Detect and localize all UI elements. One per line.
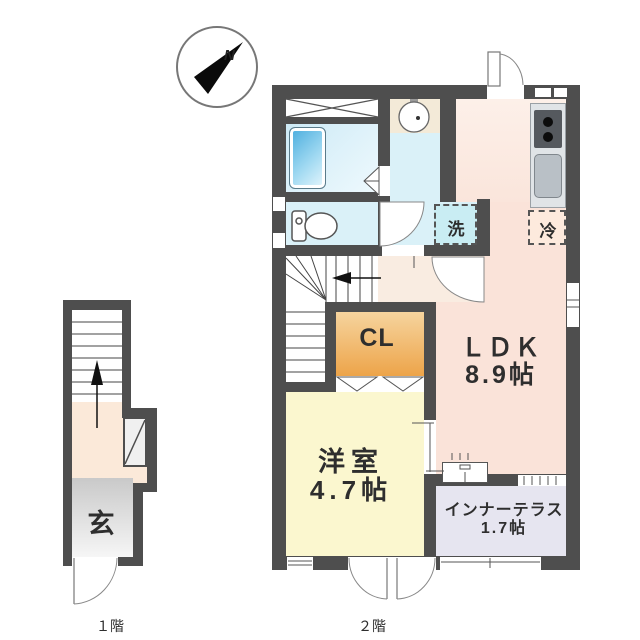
- wall-bath-toilet: [286, 192, 390, 202]
- wall-stairs-cl: [325, 302, 336, 390]
- wall1f-bump-right: [147, 408, 157, 492]
- kitchen-window-dash2: [554, 88, 567, 97]
- floor1-label: １階: [96, 616, 124, 636]
- stairs2f-upper: [286, 256, 378, 302]
- stairs1f-floor: [72, 310, 122, 402]
- toilet-window-upper: [273, 197, 285, 211]
- terrace-size-label: 1.7帖: [481, 514, 527, 538]
- wall-top: [272, 85, 580, 99]
- washroom-floor: [390, 133, 440, 245]
- fridge-label: 冷: [540, 217, 557, 242]
- terrace-bottom-window: [440, 557, 541, 570]
- shoe-cabinet: [123, 417, 147, 467]
- terrace-counter-window: [442, 462, 488, 483]
- kitchen-window-dash1: [535, 88, 551, 97]
- closet-label: CL: [359, 324, 394, 353]
- genkan-label: 玄: [88, 502, 115, 541]
- wall-hall-cl: [325, 302, 436, 312]
- wall-left: [272, 85, 286, 570]
- toilet-room-floor: [286, 202, 378, 245]
- hall1f-floor: [72, 402, 122, 478]
- bottom-door-opening: [348, 557, 436, 570]
- bifold-door-zone: [336, 376, 424, 392]
- entrance-door-swing: [488, 52, 523, 86]
- closet-x-floor: [286, 99, 378, 117]
- wall-right: [566, 85, 580, 570]
- hall-floor: [378, 256, 485, 302]
- ldk-floor-hallside: [484, 256, 566, 302]
- floor2-label: ２階: [358, 616, 386, 636]
- sliding-door-opening: [424, 420, 436, 474]
- toilet-window-lower: [273, 233, 285, 248]
- bath-door-opening: [378, 166, 390, 196]
- wall1f-left: [63, 300, 72, 566]
- terrace-hatched-window: [518, 475, 566, 486]
- stove: [534, 110, 562, 148]
- floor-plan-canvas: N: [0, 0, 640, 640]
- wall1f-top: [63, 300, 131, 310]
- front-door-opening: [72, 557, 118, 566]
- wall-stairs-western: [286, 382, 336, 392]
- bathtub: [289, 127, 326, 189]
- wall-washroom-ldk: [440, 99, 456, 202]
- wall1f-right-upper: [122, 300, 131, 418]
- compass-north-label: N: [224, 47, 236, 64]
- compass-needle-icon: [194, 42, 243, 94]
- kitchen-sink: [534, 154, 562, 198]
- western-bottom-window: [287, 557, 313, 570]
- wall-washer-right: [477, 199, 490, 256]
- washroom-counter: [390, 99, 440, 133]
- washroom-door-opening: [382, 245, 424, 256]
- ldk-side-window: [567, 283, 579, 327]
- wall1f-right-lower: [133, 483, 143, 566]
- washer-label: 洗: [448, 215, 465, 240]
- wall-closet-bottom: [286, 117, 390, 124]
- western-room-size-label: 4.7帖: [310, 470, 392, 507]
- compass: N: [177, 27, 257, 107]
- ldk-size-label: 8.9帖: [465, 355, 537, 391]
- entrance-door-opening: [487, 85, 524, 99]
- stairs2f-lower: [286, 302, 325, 382]
